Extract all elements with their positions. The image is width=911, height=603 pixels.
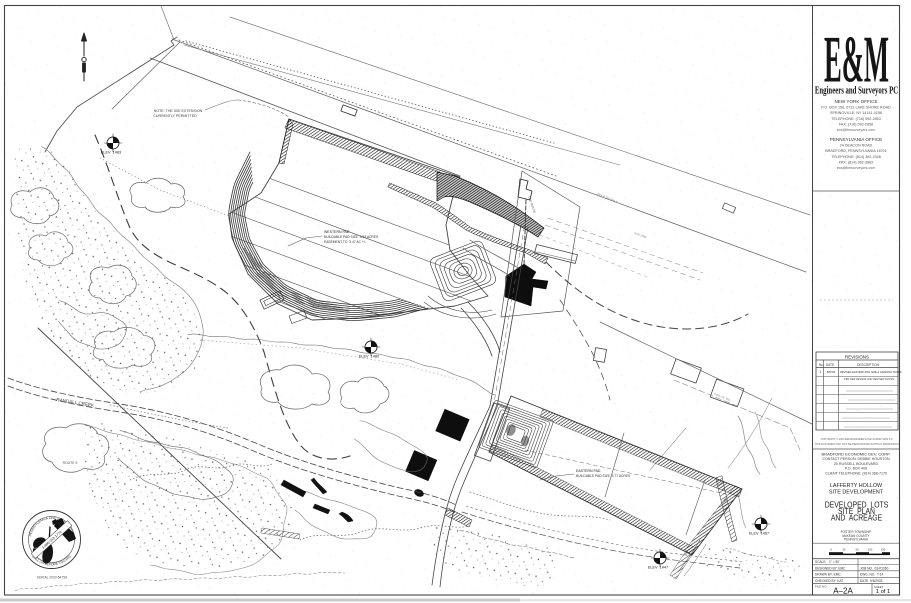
svg-text:DESIGNED BY: EMC: DESIGNED BY: EMC [815, 566, 846, 570]
svg-text:SERIAL 2003-5475A: SERIAL 2003-5475A [37, 576, 68, 580]
svg-text:NOTE: THE 500' EXTENSION: NOTE: THE 500' EXTENSION [154, 109, 203, 113]
svg-text:Engineers and Surveyors PC: Engineers and Surveyors PC [815, 84, 898, 96]
svg-text:WESTERN PAD: WESTERN PAD [324, 230, 350, 234]
svg-text:JOB NO. 03-P1060: JOB NO. 03-P1060 [860, 566, 889, 570]
svg-text:ecs@thesurveyors.com: ecs@thesurveyors.com [837, 128, 876, 132]
svg-text:1 of 1: 1 of 1 [876, 589, 891, 595]
svg-text:EASTERN PAD: EASTERN PAD [576, 469, 601, 473]
svg-text:FILE NO.: FILE NO. [815, 585, 828, 589]
svg-text:CURRENTLY PERMITTED: CURRENTLY PERMITTED [153, 114, 197, 118]
svg-text:ELEV 1467: ELEV 1467 [749, 532, 769, 536]
svg-text:24 DEACON ROAD: 24 DEACON ROAD [840, 144, 873, 148]
svg-text:DRAWN BY: EMC: DRAWN BY: EMC [815, 573, 841, 577]
svg-text:ecs@thesurveyors.com: ecs@thesurveyors.com [837, 166, 876, 170]
svg-text:LAFFERTY HOLLOW: LAFFERTY HOLLOW [830, 483, 883, 489]
svg-text:SPRINGVILLE, NY 14141-0156: SPRINGVILLE, NY 14141-0156 [830, 111, 882, 115]
svg-text:100: 100 [868, 547, 873, 551]
svg-text:FAX: (716) 592-2858: FAX: (716) 592-2858 [839, 122, 873, 126]
svg-text:PENNSYLVANIA OFFICE: PENNSYLVANIA OFFICE [830, 137, 882, 142]
svg-text:ELEV 1483: ELEV 1483 [101, 151, 121, 155]
svg-text:CLIENT TELEPHONE: (814) 368-71: CLIENT TELEPHONE: (814) 368-7170 [825, 471, 887, 475]
svg-text:DWG. NO. T-14: DWG. NO. T-14 [860, 573, 884, 577]
svg-text:BRADFORD, PENNSYLVANIA 16701: BRADFORD, PENNSYLVANIA 16701 [825, 149, 887, 153]
svg-text:BUILDABLE PAD SIZE 3.93 ACRES: BUILDABLE PAD SIZE 3.93 ACRES [324, 235, 379, 239]
svg-text:1: 1 [820, 370, 822, 374]
svg-text:NEW YORK OFFICE: NEW YORK OFFICE [834, 99, 877, 104]
svg-text:BRADFORD ECONOMIC DEV. CORP.: BRADFORD ECONOMIC DEV. CORP. [822, 452, 891, 457]
svg-text:150: 150 [881, 547, 886, 551]
svg-text:TELEPHONE: (814) 362-2348: TELEPHONE: (814) 362-2348 [831, 155, 881, 159]
svg-text:8/5/03: 8/5/03 [827, 370, 836, 374]
svg-text:P.O. BOX 156, 6731 LAKE SHORE: P.O. BOX 156, 6731 LAKE SHORE ROAD [821, 106, 891, 110]
svg-text:FAX: (814) 362-3883: FAX: (814) 362-3883 [839, 160, 873, 164]
svg-text:CONTACT PERSON: DEBBIE HOUSTON: CONTACT PERSON: DEBBIE HOUSTON [822, 457, 890, 461]
svg-text:AND ACREAGE: AND ACREAGE [831, 513, 882, 523]
svg-text:P.O. BOX 406: P.O. BOX 406 [845, 467, 867, 471]
svg-text:50: 50 [855, 547, 859, 551]
svg-text:PER DEP REVIEW AND REVISED NOT: PER DEP REVIEW AND REVISED NOTES. [844, 377, 895, 381]
svg-text:DATE: DATE [826, 363, 834, 367]
svg-text:ROUTE 5: ROUTE 5 [63, 461, 78, 465]
svg-text:EASEMENT TO 3.47 AC +/-: EASEMENT TO 3.47 AC +/- [324, 240, 366, 244]
svg-text:PENNSYLVANIA: PENNSYLVANIA [844, 538, 869, 542]
svg-text:COPYRIGHT © 2003 E&M ENGINEERS: COPYRIGHT © 2003 E&M ENGINEERS AND SURVE… [821, 438, 894, 441]
svg-text:A–2A: A–2A [833, 586, 853, 595]
svg-text:THIS DOCUMENT MAY NOT BE REPRO: THIS DOCUMENT MAY NOT BE REPRODUCED WITH… [815, 443, 900, 446]
svg-text:REVISED EASTERN PAD SIZE & GRA: REVISED EASTERN PAD SIZE & GRADING NOTES [840, 370, 902, 374]
svg-text:SCALE: 1" = 50': SCALE: 1" = 50' [815, 560, 840, 564]
svg-text:DATE 9/5/2003: DATE 9/5/2003 [860, 579, 883, 583]
svg-text:ELEV 1447: ELEV 1447 [648, 566, 668, 570]
svg-text:CHECKED BY: KAT: CHECKED BY: KAT [815, 579, 843, 583]
svg-text:REVISIONS: REVISIONS [845, 355, 869, 360]
svg-text:20 RUSSELL BOULEVARD: 20 RUSSELL BOULEVARD [834, 462, 879, 466]
svg-text:25: 25 [842, 547, 846, 551]
svg-text:ELEV 1480: ELEV 1480 [359, 355, 379, 359]
svg-text:DESCRIPTION: DESCRIPTION [857, 363, 879, 367]
svg-text:SITE DEVELOPMENT: SITE DEVELOPMENT [829, 490, 884, 496]
svg-text:BUILDABLE PAD SIZE 3.77 ACRES: BUILDABLE PAD SIZE 3.77 ACRES [576, 474, 631, 478]
svg-text:TELEPHONE: (716) 592-2853: TELEPHONE: (716) 592-2853 [831, 117, 881, 121]
